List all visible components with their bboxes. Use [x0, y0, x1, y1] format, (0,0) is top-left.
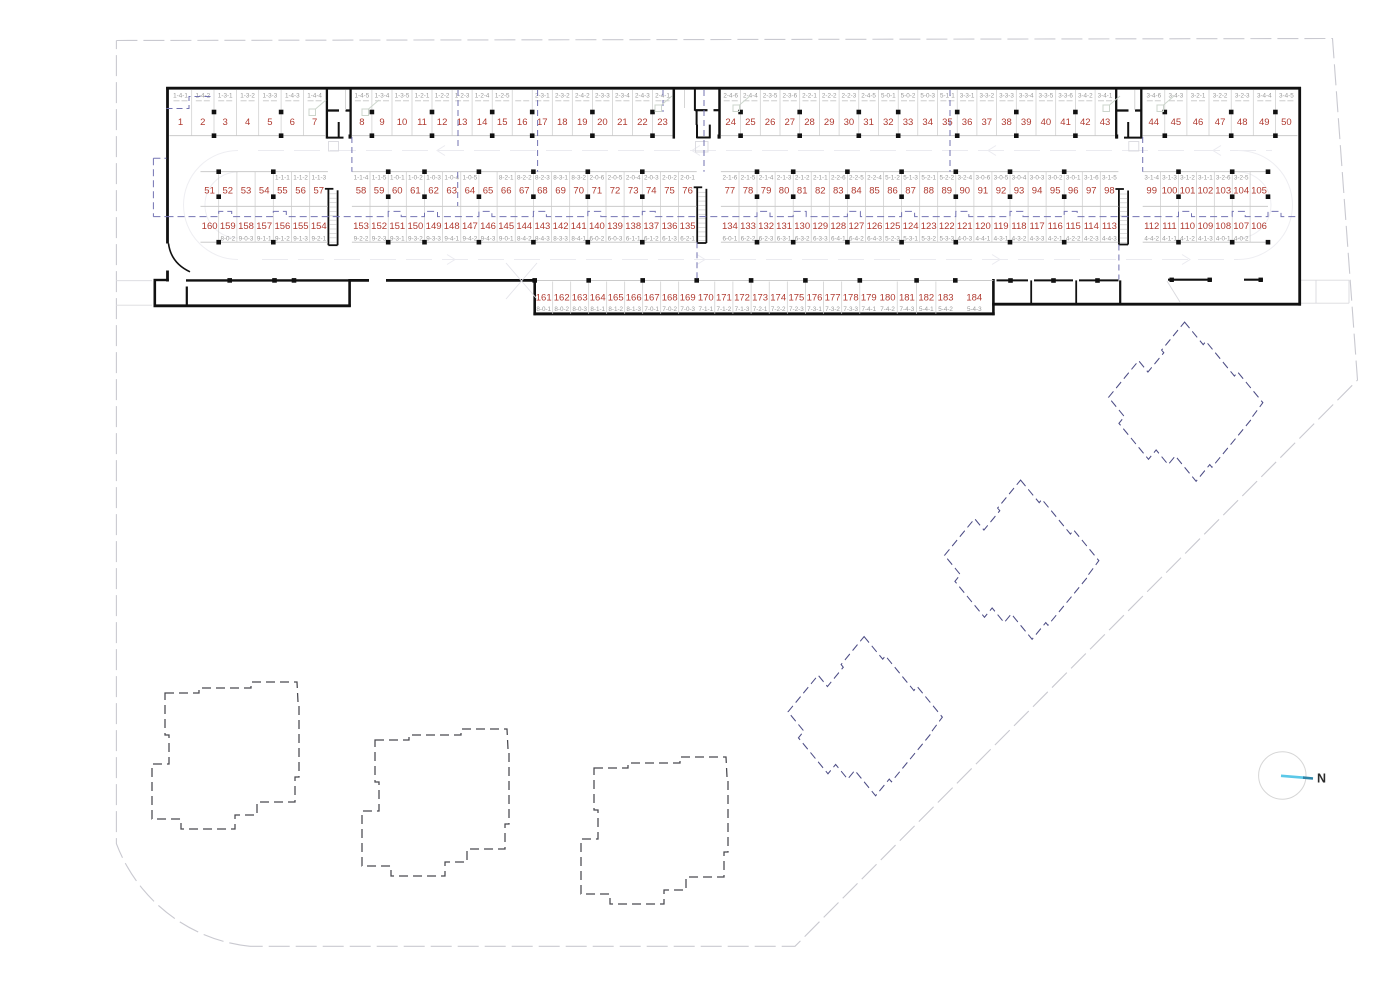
svg-text:83: 83	[833, 185, 844, 196]
svg-text:156: 156	[274, 221, 290, 232]
svg-text:2-2-5: 2-2-5	[849, 175, 864, 182]
svg-text:41: 41	[1060, 117, 1071, 128]
svg-text:141: 141	[571, 221, 587, 232]
svg-text:103: 103	[1215, 185, 1231, 196]
svg-text:7-3-2: 7-3-2	[825, 306, 840, 313]
svg-text:15: 15	[497, 117, 508, 128]
svg-text:154: 154	[311, 221, 327, 232]
svg-text:1-2-2: 1-2-2	[435, 93, 450, 100]
svg-text:33: 33	[903, 117, 914, 128]
svg-text:4-0-1: 4-0-1	[1216, 235, 1231, 242]
svg-text:34: 34	[922, 117, 933, 128]
svg-text:82: 82	[815, 185, 826, 196]
svg-text:2-0-6: 2-0-6	[590, 175, 605, 182]
svg-text:4-0-3: 4-0-3	[957, 235, 972, 242]
svg-text:127: 127	[848, 221, 864, 232]
svg-text:158: 158	[238, 221, 254, 232]
svg-text:87: 87	[905, 185, 916, 196]
svg-text:8-1-1: 8-1-1	[590, 306, 605, 313]
svg-text:1-0-2: 1-0-2	[408, 175, 423, 182]
svg-text:59: 59	[374, 185, 385, 196]
svg-text:6-1-2: 6-1-2	[644, 235, 659, 242]
svg-text:1-3-4: 1-3-4	[375, 93, 390, 100]
svg-text:4-3-1: 4-3-1	[994, 235, 1009, 242]
svg-text:3-2-3: 3-2-3	[1235, 93, 1250, 100]
svg-text:173: 173	[752, 292, 768, 303]
svg-text:178: 178	[843, 292, 859, 303]
svg-text:3-0-6: 3-0-6	[976, 175, 991, 182]
svg-text:4-2-1: 4-2-1	[1048, 235, 1063, 242]
svg-text:22: 22	[637, 117, 648, 128]
svg-text:1: 1	[178, 117, 183, 128]
svg-text:3-2-1: 3-2-1	[1191, 93, 1206, 100]
svg-text:4-0-2: 4-0-2	[1234, 235, 1249, 242]
svg-text:5-0-3: 5-0-3	[920, 93, 935, 100]
svg-text:184: 184	[966, 292, 982, 303]
svg-text:1-1-4: 1-1-4	[354, 175, 369, 182]
svg-text:49: 49	[1259, 117, 1270, 128]
svg-text:8-2-1: 8-2-1	[499, 175, 514, 182]
svg-text:30: 30	[844, 117, 855, 128]
svg-text:2-2-4: 2-2-4	[867, 175, 882, 182]
svg-text:163: 163	[572, 292, 588, 303]
svg-text:165: 165	[608, 292, 624, 303]
svg-text:4-4-3: 4-4-3	[1102, 235, 1117, 242]
svg-text:7-3-3: 7-3-3	[843, 306, 858, 313]
svg-text:3-3-3: 3-3-3	[999, 93, 1014, 100]
svg-text:8-2-2: 8-2-2	[517, 175, 532, 182]
svg-text:1-0-1: 1-0-1	[390, 175, 405, 182]
svg-text:3-4-2: 3-4-2	[1078, 93, 1093, 100]
svg-text:4: 4	[245, 117, 250, 128]
svg-text:3-2-6: 3-2-6	[1216, 175, 1231, 182]
svg-text:9-3-1: 9-3-1	[390, 235, 405, 242]
svg-text:116: 116	[1048, 221, 1063, 232]
svg-text:134: 134	[722, 221, 738, 232]
svg-text:3-2-5: 3-2-5	[1234, 175, 1249, 182]
svg-text:6-3-1: 6-3-1	[777, 235, 792, 242]
svg-text:121: 121	[957, 221, 973, 232]
svg-text:4-4-1: 4-4-1	[976, 235, 991, 242]
svg-text:6-4-3: 6-4-3	[867, 235, 882, 242]
svg-text:56: 56	[295, 185, 306, 196]
svg-text:2-1-5: 2-1-5	[741, 175, 756, 182]
svg-text:7-4-1: 7-4-1	[861, 306, 876, 313]
svg-text:2-3-5: 2-3-5	[763, 93, 778, 100]
svg-text:85: 85	[869, 185, 880, 196]
svg-text:3-1-5: 3-1-5	[1102, 175, 1117, 182]
svg-text:79: 79	[761, 185, 772, 196]
svg-text:2-2-1: 2-2-1	[802, 93, 817, 100]
svg-text:2-4-6: 2-4-6	[723, 93, 738, 100]
svg-text:3-2-2: 3-2-2	[1213, 93, 1228, 100]
svg-text:6-4-2: 6-4-2	[849, 235, 864, 242]
svg-text:3-0-3: 3-0-3	[1030, 175, 1045, 182]
svg-text:51: 51	[204, 185, 215, 196]
svg-text:39: 39	[1021, 117, 1032, 128]
svg-text:9-4-1: 9-4-1	[444, 235, 459, 242]
svg-text:104: 104	[1233, 185, 1249, 196]
svg-text:37: 37	[982, 117, 993, 128]
svg-text:145: 145	[498, 221, 514, 232]
svg-text:62: 62	[428, 185, 439, 196]
svg-text:28: 28	[804, 117, 815, 128]
svg-text:115: 115	[1066, 221, 1081, 232]
svg-text:74: 74	[646, 185, 657, 196]
svg-text:136: 136	[662, 221, 678, 232]
svg-text:7-1-1: 7-1-1	[698, 306, 713, 313]
svg-text:8: 8	[359, 117, 364, 128]
svg-text:8-4-2: 8-4-2	[517, 235, 532, 242]
svg-text:119: 119	[993, 221, 1008, 232]
svg-text:57: 57	[314, 185, 325, 196]
svg-text:3-3-4: 3-3-4	[1019, 93, 1034, 100]
svg-text:1-0-5: 1-0-5	[463, 175, 478, 182]
svg-text:9-0-1: 9-0-1	[499, 235, 514, 242]
svg-text:6-2-3: 6-2-3	[759, 235, 774, 242]
svg-text:3-1-3: 3-1-3	[1162, 175, 1177, 182]
svg-text:3-3-1: 3-3-1	[960, 93, 975, 100]
svg-text:5-1-1: 5-1-1	[940, 93, 955, 100]
svg-text:1-4-1: 1-4-1	[173, 93, 188, 100]
svg-text:3-3-6: 3-3-6	[1058, 93, 1073, 100]
svg-text:113: 113	[1102, 221, 1117, 232]
svg-text:2-3-6: 2-3-6	[782, 93, 797, 100]
svg-text:8-0-2: 8-0-2	[554, 306, 569, 313]
svg-text:3: 3	[223, 117, 228, 128]
svg-text:63: 63	[446, 185, 457, 196]
svg-text:151: 151	[389, 221, 405, 232]
svg-text:132: 132	[758, 221, 774, 232]
svg-text:123: 123	[921, 221, 937, 232]
svg-text:6-0-1: 6-0-1	[723, 235, 738, 242]
svg-text:2-4-3: 2-4-3	[635, 93, 650, 100]
svg-text:129: 129	[812, 221, 828, 232]
svg-text:1-3-1: 1-3-1	[218, 93, 233, 100]
svg-text:7-0-1: 7-0-1	[644, 306, 659, 313]
svg-text:8-1-3: 8-1-3	[626, 306, 641, 313]
svg-text:69: 69	[555, 185, 566, 196]
svg-text:N: N	[1317, 772, 1326, 786]
svg-text:170: 170	[698, 292, 714, 303]
svg-text:176: 176	[807, 292, 823, 303]
svg-text:155: 155	[293, 221, 309, 232]
svg-text:4-1-2: 4-1-2	[1180, 235, 1195, 242]
svg-text:1-4-5: 1-4-5	[355, 93, 370, 100]
svg-text:7-4-3: 7-4-3	[900, 306, 915, 313]
svg-text:35: 35	[942, 117, 953, 128]
svg-text:8-3-2: 8-3-2	[571, 175, 586, 182]
svg-text:2-2-2: 2-2-2	[822, 93, 837, 100]
svg-text:120: 120	[975, 221, 991, 232]
svg-text:3-0-5: 3-0-5	[994, 175, 1009, 182]
svg-text:50: 50	[1281, 117, 1292, 128]
svg-text:114: 114	[1084, 221, 1099, 232]
svg-text:117: 117	[1030, 221, 1045, 232]
svg-text:8-2-3: 8-2-3	[535, 175, 550, 182]
svg-text:2-4-4: 2-4-4	[743, 93, 758, 100]
svg-text:177: 177	[825, 292, 841, 303]
svg-text:5-4-2: 5-4-2	[938, 306, 953, 313]
svg-text:1-1-1: 1-1-1	[275, 175, 290, 182]
svg-text:2-0-3: 2-0-3	[644, 175, 659, 182]
svg-text:9-4-2: 9-4-2	[463, 235, 478, 242]
svg-text:111: 111	[1162, 221, 1176, 232]
svg-text:11: 11	[417, 117, 427, 128]
svg-text:159: 159	[220, 221, 236, 232]
svg-text:102: 102	[1197, 185, 1213, 196]
svg-text:2-1-4: 2-1-4	[759, 175, 774, 182]
svg-text:76: 76	[682, 185, 693, 196]
svg-text:5-3-1: 5-3-1	[903, 235, 918, 242]
svg-text:80: 80	[779, 185, 790, 196]
svg-text:88: 88	[923, 185, 934, 196]
svg-text:8-1-2: 8-1-2	[608, 306, 623, 313]
svg-text:7-0-2: 7-0-2	[662, 306, 677, 313]
svg-text:9-1-1: 9-1-1	[257, 235, 272, 242]
svg-text:24: 24	[725, 117, 736, 128]
svg-text:2-1-1: 2-1-1	[813, 175, 828, 182]
svg-text:5: 5	[267, 117, 272, 128]
svg-text:78: 78	[743, 185, 754, 196]
svg-text:1-3-3: 1-3-3	[263, 93, 278, 100]
svg-text:3-2-4: 3-2-4	[957, 175, 972, 182]
svg-text:128: 128	[830, 221, 846, 232]
svg-text:183: 183	[938, 292, 954, 303]
svg-text:92: 92	[996, 185, 1007, 196]
svg-text:143: 143	[534, 221, 550, 232]
svg-text:101: 101	[1180, 185, 1196, 196]
svg-text:5-1-2: 5-1-2	[885, 175, 900, 182]
svg-text:160: 160	[202, 221, 218, 232]
svg-text:148: 148	[444, 221, 460, 232]
svg-text:12: 12	[437, 117, 448, 128]
svg-text:110: 110	[1180, 221, 1195, 232]
svg-text:100: 100	[1162, 185, 1178, 196]
svg-text:2-1-6: 2-1-6	[723, 175, 738, 182]
svg-text:7-1-2: 7-1-2	[717, 306, 732, 313]
svg-text:90: 90	[960, 185, 971, 196]
svg-text:6-2-1: 6-2-1	[680, 235, 695, 242]
svg-text:44: 44	[1149, 117, 1160, 128]
svg-text:1-4-4: 1-4-4	[307, 93, 322, 100]
svg-text:68: 68	[537, 185, 548, 196]
svg-text:65: 65	[483, 185, 494, 196]
svg-text:2-3-4: 2-3-4	[615, 93, 630, 100]
svg-text:7: 7	[312, 117, 317, 128]
svg-text:55: 55	[277, 185, 288, 196]
svg-text:182: 182	[918, 292, 934, 303]
svg-text:4-3-3: 4-3-3	[1030, 235, 1045, 242]
svg-text:2-4-5: 2-4-5	[861, 93, 876, 100]
svg-text:9-2-2: 9-2-2	[354, 235, 369, 242]
svg-text:7-0-3: 7-0-3	[680, 306, 695, 313]
svg-text:7-2-1: 7-2-1	[753, 306, 768, 313]
svg-text:1-3-5: 1-3-5	[395, 93, 410, 100]
svg-text:9-2-1: 9-2-1	[311, 235, 326, 242]
svg-text:172: 172	[734, 292, 750, 303]
svg-text:5-2-3: 5-2-3	[885, 235, 900, 242]
svg-text:112: 112	[1144, 221, 1159, 232]
svg-text:3-0-1: 3-0-1	[1066, 175, 1081, 182]
svg-text:168: 168	[662, 292, 678, 303]
svg-text:1-1-3: 1-1-3	[311, 175, 326, 182]
svg-text:6-1-3: 6-1-3	[662, 235, 677, 242]
svg-text:8-3-3: 8-3-3	[553, 235, 568, 242]
svg-text:86: 86	[887, 185, 898, 196]
svg-text:67: 67	[519, 185, 530, 196]
svg-text:164: 164	[590, 292, 606, 303]
svg-text:138: 138	[625, 221, 641, 232]
svg-text:171: 171	[716, 292, 732, 303]
svg-text:3-0-4: 3-0-4	[1012, 175, 1027, 182]
svg-text:130: 130	[794, 221, 810, 232]
svg-text:5-4-1: 5-4-1	[919, 306, 934, 313]
svg-text:36: 36	[962, 117, 973, 128]
svg-text:19: 19	[577, 117, 588, 128]
svg-text:89: 89	[942, 185, 953, 196]
svg-text:14: 14	[477, 117, 488, 128]
svg-text:2-3-2: 2-3-2	[555, 93, 570, 100]
svg-text:71: 71	[592, 185, 603, 196]
svg-text:124: 124	[903, 221, 919, 232]
svg-text:7-3-1: 7-3-1	[807, 306, 822, 313]
svg-text:5-0-1: 5-0-1	[881, 93, 896, 100]
svg-text:9-3-2: 9-3-2	[408, 235, 423, 242]
svg-text:2-2-3: 2-2-3	[842, 93, 857, 100]
svg-text:48: 48	[1237, 117, 1248, 128]
svg-text:3-3-2: 3-3-2	[979, 93, 994, 100]
svg-text:149: 149	[426, 221, 442, 232]
svg-text:105: 105	[1251, 185, 1267, 196]
svg-text:137: 137	[643, 221, 659, 232]
svg-text:10: 10	[397, 117, 408, 128]
svg-text:9-2-3: 9-2-3	[372, 235, 387, 242]
svg-text:125: 125	[885, 221, 901, 232]
svg-text:4-3-2: 4-3-2	[1012, 235, 1027, 242]
svg-text:139: 139	[607, 221, 623, 232]
svg-text:4-1-3: 4-1-3	[1198, 235, 1213, 242]
svg-text:4-2-3: 4-2-3	[1084, 235, 1099, 242]
svg-text:1-2-1: 1-2-1	[415, 93, 430, 100]
svg-text:9-1-3: 9-1-3	[293, 235, 308, 242]
svg-text:179: 179	[861, 292, 877, 303]
svg-text:27: 27	[785, 117, 796, 128]
svg-text:40: 40	[1041, 117, 1052, 128]
svg-text:53: 53	[241, 185, 252, 196]
svg-text:126: 126	[867, 221, 883, 232]
svg-text:96: 96	[1068, 185, 1079, 196]
svg-text:1-1-5: 1-1-5	[372, 175, 387, 182]
svg-text:106: 106	[1251, 221, 1267, 232]
svg-text:122: 122	[939, 221, 955, 232]
svg-text:142: 142	[553, 221, 569, 232]
svg-text:162: 162	[554, 292, 570, 303]
svg-text:6-0-3: 6-0-3	[608, 235, 623, 242]
svg-text:93: 93	[1014, 185, 1025, 196]
svg-text:46: 46	[1193, 117, 1204, 128]
svg-text:6-1-1: 6-1-1	[626, 235, 641, 242]
svg-text:3-4-1: 3-4-1	[1098, 93, 1113, 100]
svg-text:52: 52	[223, 185, 234, 196]
svg-text:5-0-2: 5-0-2	[901, 93, 916, 100]
svg-text:99: 99	[1146, 185, 1157, 196]
svg-text:107: 107	[1233, 221, 1249, 232]
svg-text:3-1-6: 3-1-6	[1084, 175, 1099, 182]
svg-text:21: 21	[617, 117, 628, 128]
svg-text:6-3-2: 6-3-2	[795, 235, 810, 242]
svg-text:133: 133	[740, 221, 756, 232]
svg-text:5-2-2: 5-2-2	[939, 175, 954, 182]
svg-text:16: 16	[517, 117, 528, 128]
svg-text:5-1-3: 5-1-3	[903, 175, 918, 182]
svg-text:144: 144	[516, 221, 532, 232]
svg-text:8-0-1: 8-0-1	[536, 306, 551, 313]
svg-text:91: 91	[978, 185, 989, 196]
svg-text:94: 94	[1032, 185, 1043, 196]
svg-text:6-4-1: 6-4-1	[831, 235, 846, 242]
svg-text:1-2-4: 1-2-4	[475, 93, 490, 100]
svg-text:9: 9	[379, 117, 384, 128]
svg-text:5-3-3: 5-3-3	[939, 235, 954, 242]
svg-text:174: 174	[770, 292, 786, 303]
svg-text:9-0-3: 9-0-3	[239, 235, 254, 242]
svg-text:7-2-2: 7-2-2	[771, 306, 786, 313]
svg-text:3-1-4: 3-1-4	[1144, 175, 1159, 182]
svg-text:7-4-2: 7-4-2	[880, 306, 895, 313]
svg-text:2-4-2: 2-4-2	[575, 93, 590, 100]
svg-text:64: 64	[465, 185, 476, 196]
svg-text:3-1-2: 3-1-2	[1180, 175, 1195, 182]
svg-text:7-2-3: 7-2-3	[789, 306, 804, 313]
svg-text:9-3-3: 9-3-3	[426, 235, 441, 242]
svg-text:152: 152	[371, 221, 387, 232]
svg-text:3-4-6: 3-4-6	[1146, 93, 1161, 100]
svg-text:58: 58	[356, 185, 367, 196]
svg-text:31: 31	[863, 117, 874, 128]
svg-text:2-0-5: 2-0-5	[608, 175, 623, 182]
svg-text:38: 38	[1001, 117, 1012, 128]
svg-text:5-4-3: 5-4-3	[967, 306, 982, 313]
svg-text:54: 54	[259, 185, 270, 196]
svg-text:42: 42	[1080, 117, 1091, 128]
svg-text:26: 26	[765, 117, 776, 128]
svg-text:29: 29	[824, 117, 835, 128]
svg-text:6-0-2: 6-0-2	[590, 235, 605, 242]
svg-text:2-1-3: 2-1-3	[777, 175, 792, 182]
svg-text:1-1-2: 1-1-2	[293, 175, 308, 182]
svg-text:161: 161	[536, 292, 552, 303]
svg-text:73: 73	[628, 185, 639, 196]
svg-text:8-3-1: 8-3-1	[553, 175, 568, 182]
svg-text:175: 175	[788, 292, 804, 303]
svg-text:147: 147	[462, 221, 478, 232]
svg-text:146: 146	[480, 221, 496, 232]
svg-text:3-4-5: 3-4-5	[1279, 93, 1294, 100]
svg-text:8-0-3: 8-0-3	[572, 306, 587, 313]
svg-text:77: 77	[725, 185, 736, 196]
svg-text:9-1-2: 9-1-2	[275, 235, 290, 242]
svg-text:95: 95	[1050, 185, 1061, 196]
svg-text:1-0-3: 1-0-3	[426, 175, 441, 182]
svg-text:6-2-2: 6-2-2	[741, 235, 756, 242]
svg-text:43: 43	[1100, 117, 1111, 128]
svg-text:8-0-2: 8-0-2	[220, 235, 235, 242]
svg-text:6: 6	[290, 117, 295, 128]
svg-text:109: 109	[1197, 221, 1213, 232]
svg-text:4-1-1: 4-1-1	[1162, 235, 1177, 242]
svg-text:60: 60	[392, 185, 403, 196]
